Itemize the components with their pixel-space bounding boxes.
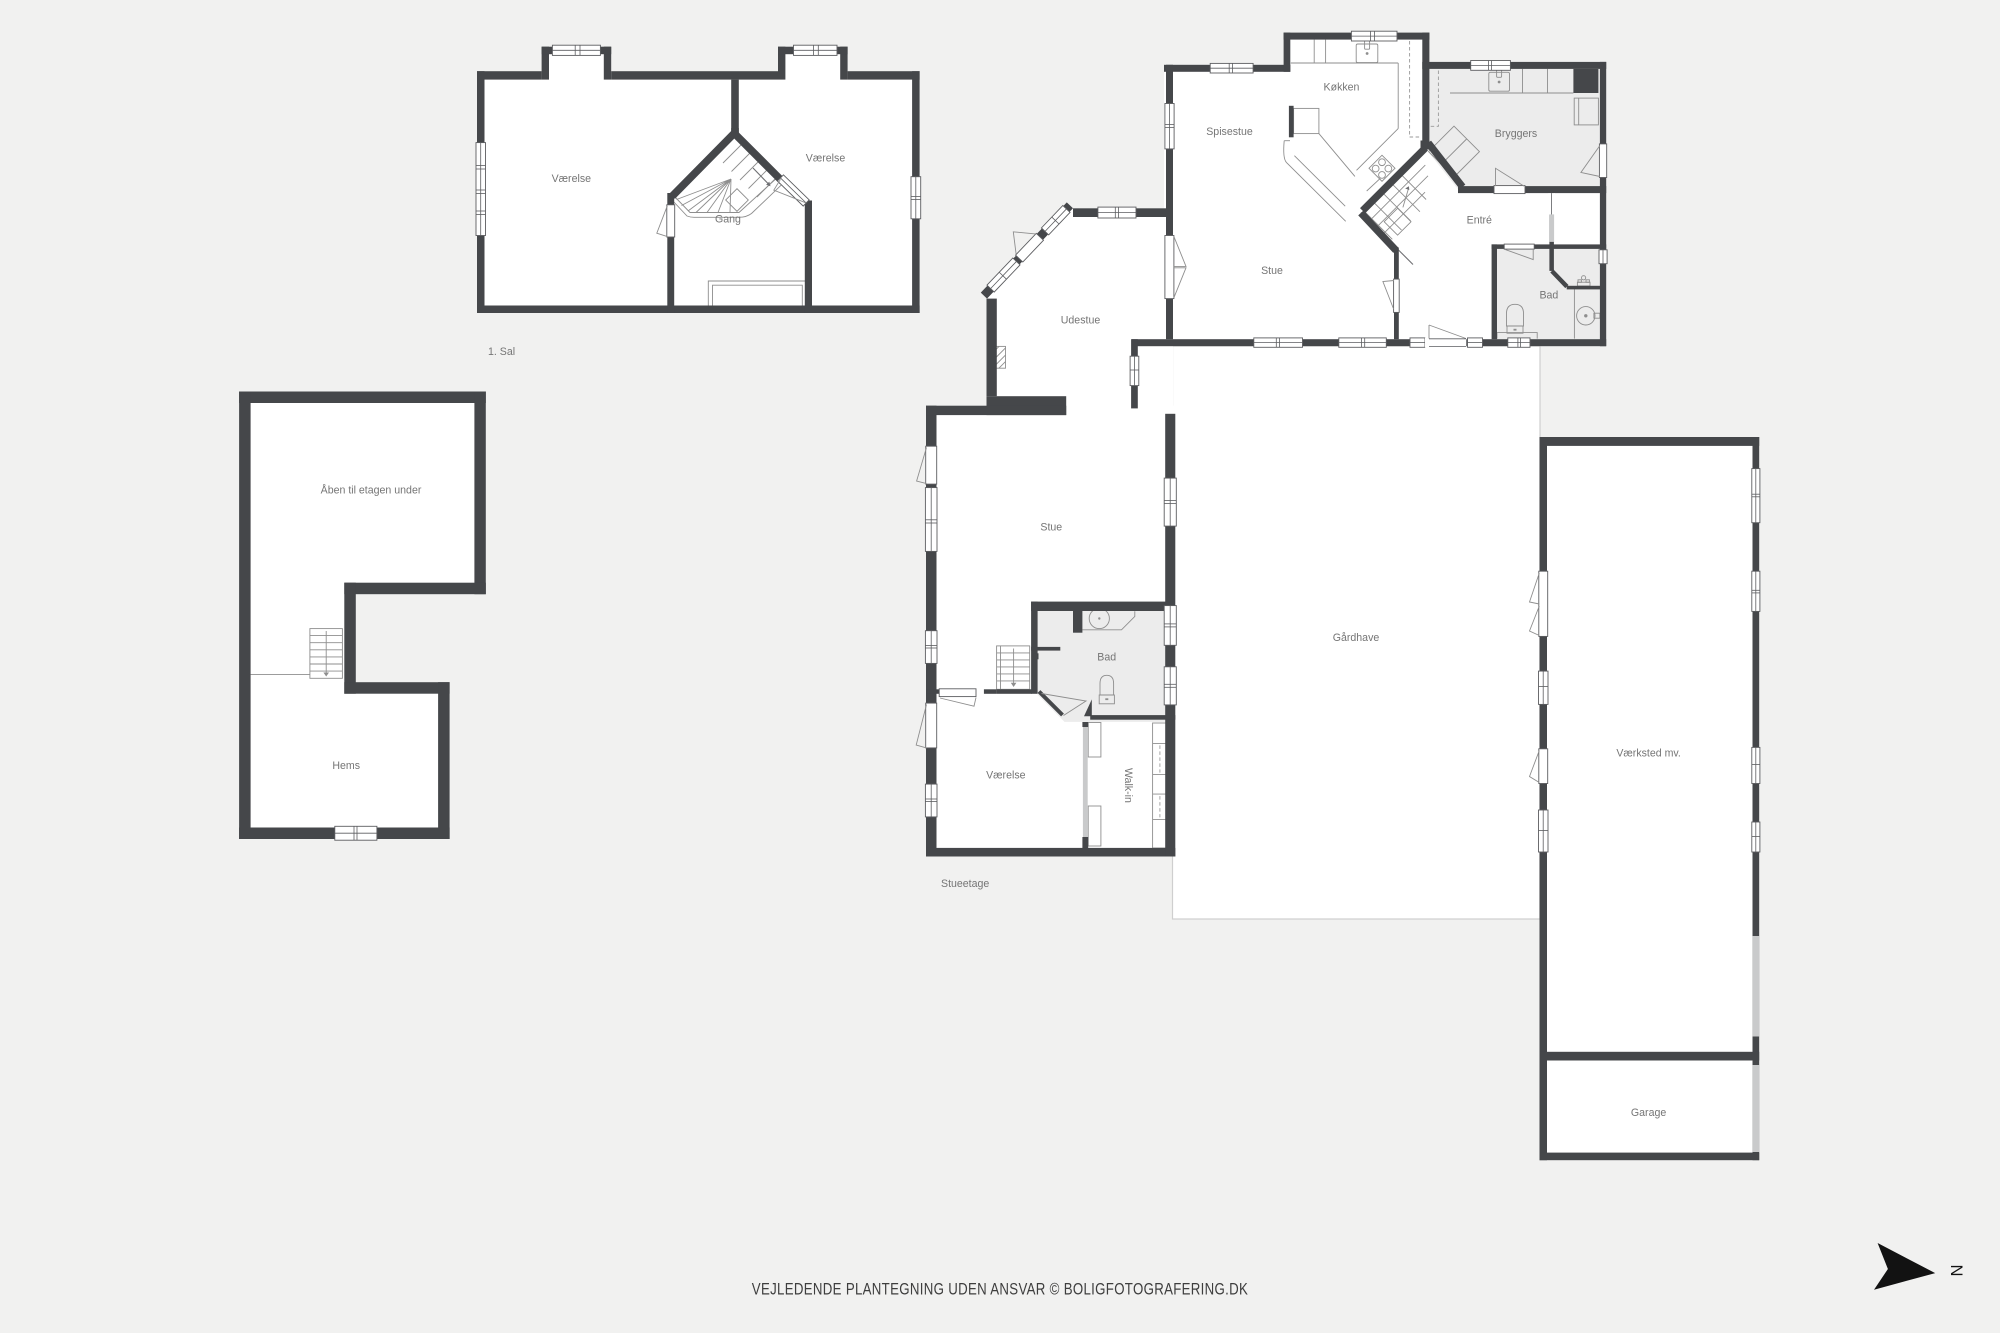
svg-text:Walk-in: Walk-in (1122, 768, 1134, 803)
svg-text:Udestue: Udestue (1061, 315, 1101, 327)
svg-text:Værelse: Værelse (806, 153, 846, 165)
svg-text:Stue: Stue (1040, 522, 1062, 534)
svg-text:Åben til etagen under: Åben til etagen under (321, 483, 422, 496)
svg-text:Værelse: Værelse (986, 770, 1026, 782)
svg-text:Hems: Hems (332, 760, 360, 772)
svg-text:1. Sal: 1. Sal (488, 346, 515, 358)
svg-text:Bad: Bad (1539, 290, 1558, 302)
svg-text:VEJLEDENDE PLANTEGNING UDEN AN: VEJLEDENDE PLANTEGNING UDEN ANSVAR © BOL… (752, 1280, 1248, 1299)
svg-text:Gang: Gang (715, 214, 741, 226)
svg-text:Entré: Entré (1467, 215, 1492, 227)
svg-text:Værksted mv.: Værksted mv. (1616, 748, 1681, 760)
svg-text:Værelse: Værelse (552, 173, 592, 185)
svg-text:Bryggers: Bryggers (1495, 128, 1537, 140)
svg-text:Stueetage: Stueetage (941, 878, 989, 890)
svg-text:Stue: Stue (1261, 265, 1283, 277)
svg-text:Garage: Garage (1631, 1107, 1666, 1119)
svg-text:Køkken: Køkken (1324, 82, 1360, 94)
svg-text:Bad: Bad (1097, 652, 1116, 664)
svg-text:Gårdhave: Gårdhave (1333, 632, 1380, 644)
svg-text:N: N (1947, 1265, 1965, 1277)
svg-text:Spisestue: Spisestue (1206, 126, 1253, 138)
